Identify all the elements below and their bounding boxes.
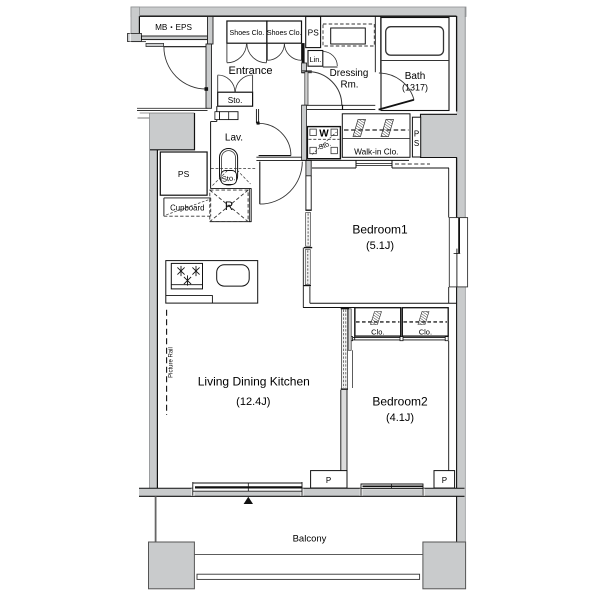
svg-text:R: R (225, 201, 233, 213)
svg-text:Picture Rail: Picture Rail (169, 347, 175, 378)
svg-text:P: P (414, 130, 419, 139)
svg-text:PS: PS (308, 28, 320, 38)
svg-text:P: P (326, 476, 331, 485)
svg-text:Cupboard: Cupboard (170, 204, 204, 213)
svg-text:Walk-in Clo.: Walk-in Clo. (354, 146, 398, 156)
svg-text:W: W (319, 129, 329, 140)
svg-text:MB・EPS: MB・EPS (155, 23, 192, 32)
svg-text:Rm.: Rm. (341, 80, 359, 91)
svg-text:Bedroom2: Bedroom2 (372, 395, 428, 409)
svg-text:(1317): (1317) (402, 83, 428, 93)
svg-text:Shoes Clo.: Shoes Clo. (230, 29, 265, 37)
svg-text:Lav.: Lav. (225, 133, 243, 144)
svg-text:Bedroom1: Bedroom1 (352, 223, 408, 237)
svg-text:Lin.: Lin. (309, 55, 321, 64)
svg-text:Sto.: Sto. (228, 96, 243, 105)
svg-text:Clo.: Clo. (419, 328, 432, 337)
svg-text:Clo.: Clo. (371, 328, 384, 337)
svg-text:Dressing: Dressing (330, 68, 369, 79)
svg-text:Bath: Bath (405, 71, 426, 82)
svg-text:(12.4J): (12.4J) (236, 396, 270, 408)
svg-text:P: P (442, 476, 447, 485)
svg-text:Living Dining Kitchen: Living Dining Kitchen (198, 375, 310, 389)
svg-text:S: S (414, 139, 419, 148)
svg-text:Balcony: Balcony (293, 534, 327, 545)
svg-text:PS: PS (178, 169, 190, 179)
svg-text:Shoes Clo.: Shoes Clo. (267, 29, 302, 37)
svg-text:(4.1J): (4.1J) (386, 412, 414, 424)
svg-text:(5.1J): (5.1J) (366, 240, 394, 252)
